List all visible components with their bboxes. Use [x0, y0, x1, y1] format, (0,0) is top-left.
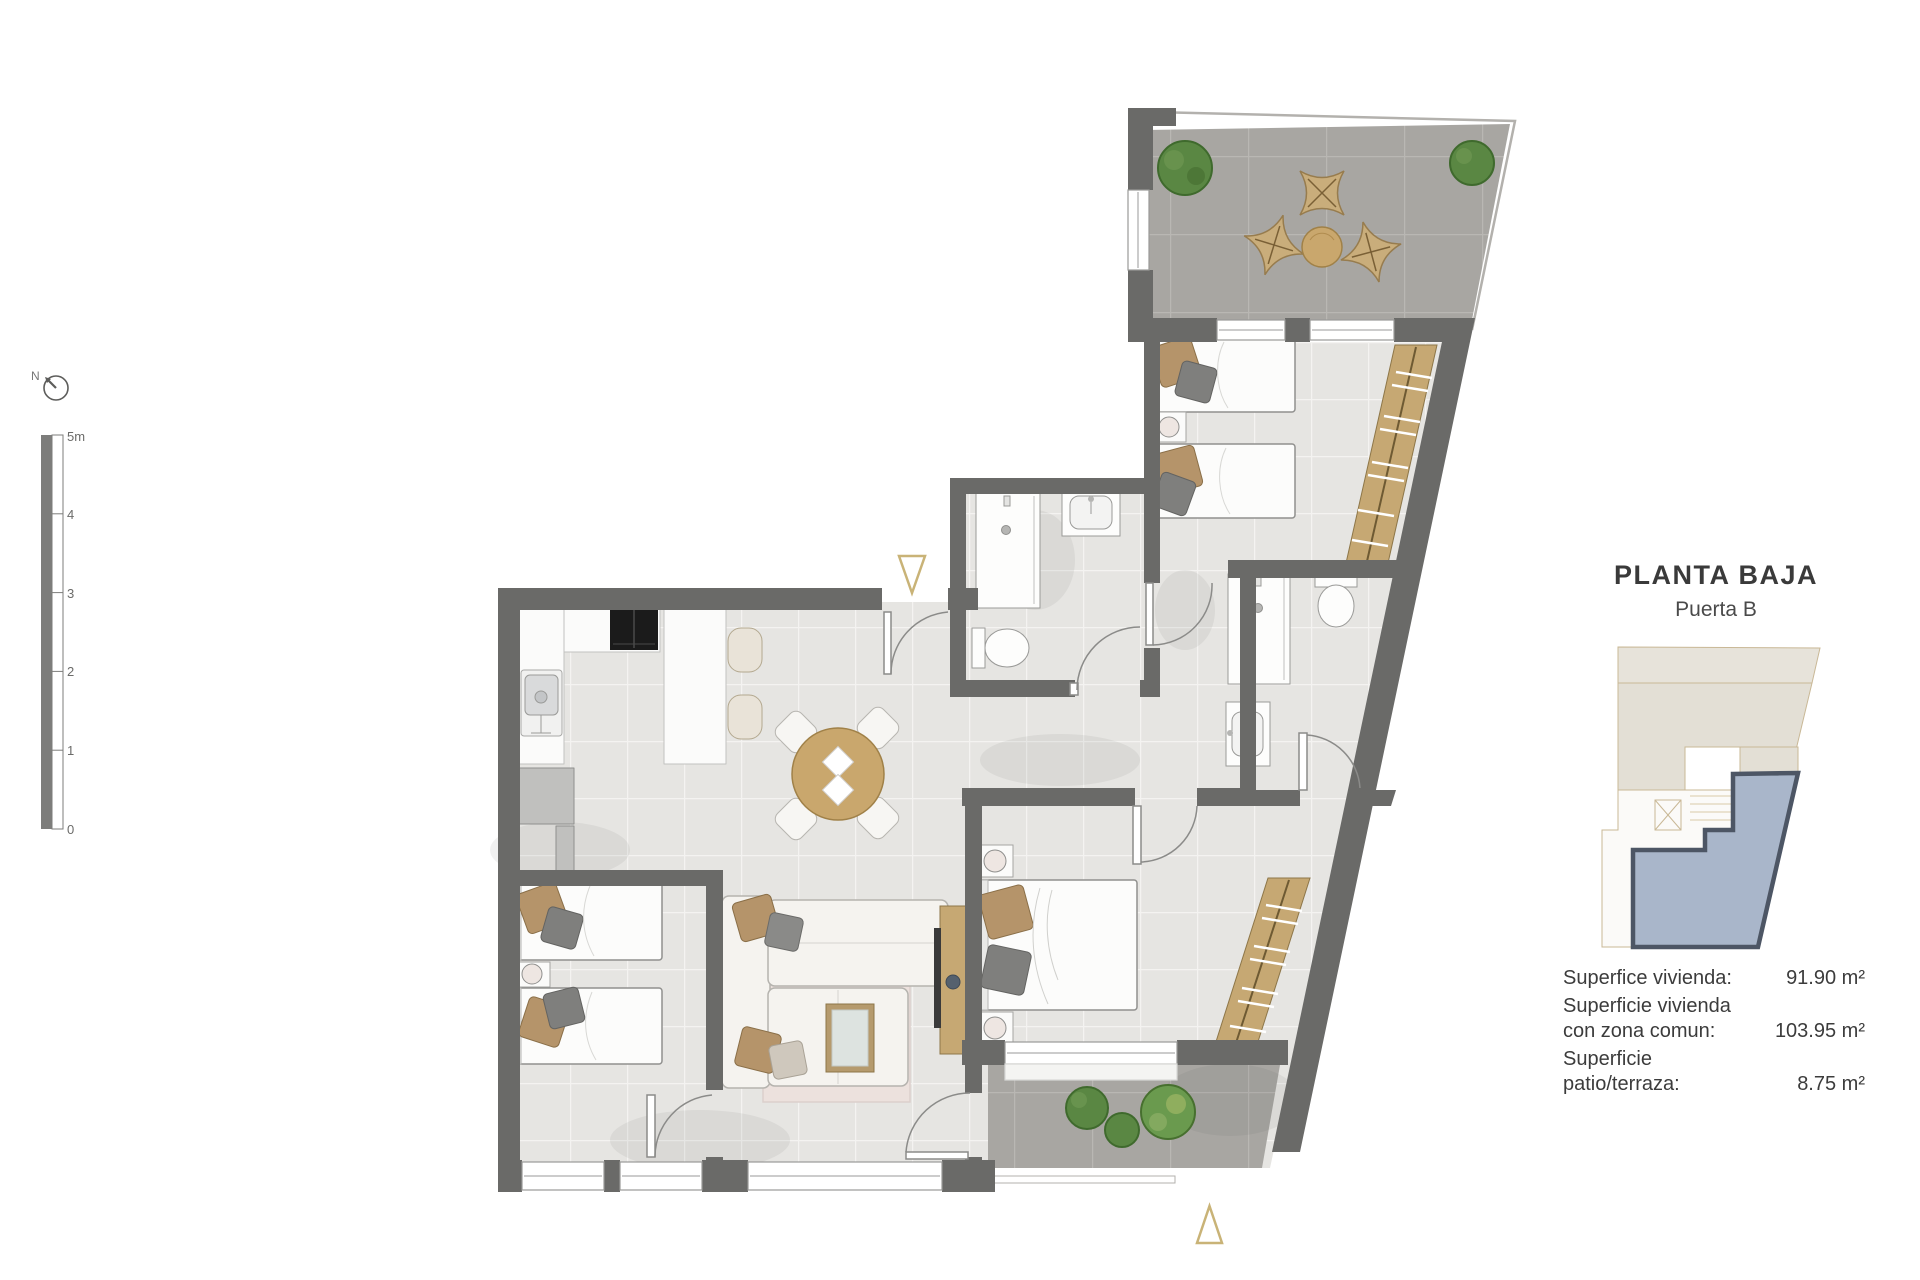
scale-and-compass: N 5m 4 3 2 1 0: [24, 358, 124, 848]
entry-arrow-icon: [899, 556, 925, 593]
plant: [1450, 141, 1494, 185]
compass-icon: N: [31, 369, 68, 400]
scale-label-5m: 5m: [67, 429, 85, 444]
shower: [1228, 574, 1290, 684]
kitchen-island: [664, 604, 726, 764]
area-label: Superfice vivienda:: [1563, 966, 1732, 992]
scale-label-2: 2: [67, 664, 74, 679]
surface-areas: Superfice vivienda: 91.90 m² Superficie …: [1563, 966, 1865, 1100]
key-plan: [1596, 638, 1836, 958]
coffee-table: [826, 1004, 874, 1072]
fridge: [518, 768, 574, 824]
stool: [728, 695, 762, 739]
tv: [934, 928, 941, 1028]
scale-bar: 5m 4 3 2 1 0: [41, 429, 85, 837]
area-label: Superficie vivienda con zona comun:: [1563, 994, 1768, 1045]
scale-label-0: 0: [67, 822, 74, 837]
bathroom-sink: [1062, 490, 1120, 536]
plant: [1158, 141, 1212, 195]
floor-plan: [480, 90, 1560, 1260]
area-value: 91.90 m²: [1786, 966, 1865, 992]
area-label: Superficie patio/terraza:: [1563, 1047, 1768, 1098]
scale-label-1: 1: [67, 743, 74, 758]
bottom-terrace-edge: [990, 1176, 1175, 1183]
area-value: 8.75 m²: [1797, 1072, 1865, 1098]
compass-north-label: N: [31, 369, 40, 383]
scale-label-3: 3: [67, 586, 74, 601]
kitchen-sink: [521, 670, 562, 736]
exit-arrow-icon: [1197, 1206, 1222, 1243]
scale-label-4: 4: [67, 507, 74, 522]
area-row: Superfice vivienda: 91.90 m²: [1563, 966, 1865, 992]
area-row: Superficie vivienda con zona comun: 103.…: [1563, 994, 1865, 1045]
area-row: Superficie patio/terraza: 8.75 m²: [1563, 1047, 1865, 1098]
toilet: [1315, 574, 1357, 627]
page-subtitle: Puerta B: [1556, 598, 1876, 622]
shower: [976, 492, 1040, 608]
area-value: 103.95 m²: [1775, 1019, 1865, 1045]
page-title: PLANTA BAJA: [1556, 560, 1876, 591]
toilet: [972, 628, 1029, 668]
stool: [728, 628, 762, 672]
